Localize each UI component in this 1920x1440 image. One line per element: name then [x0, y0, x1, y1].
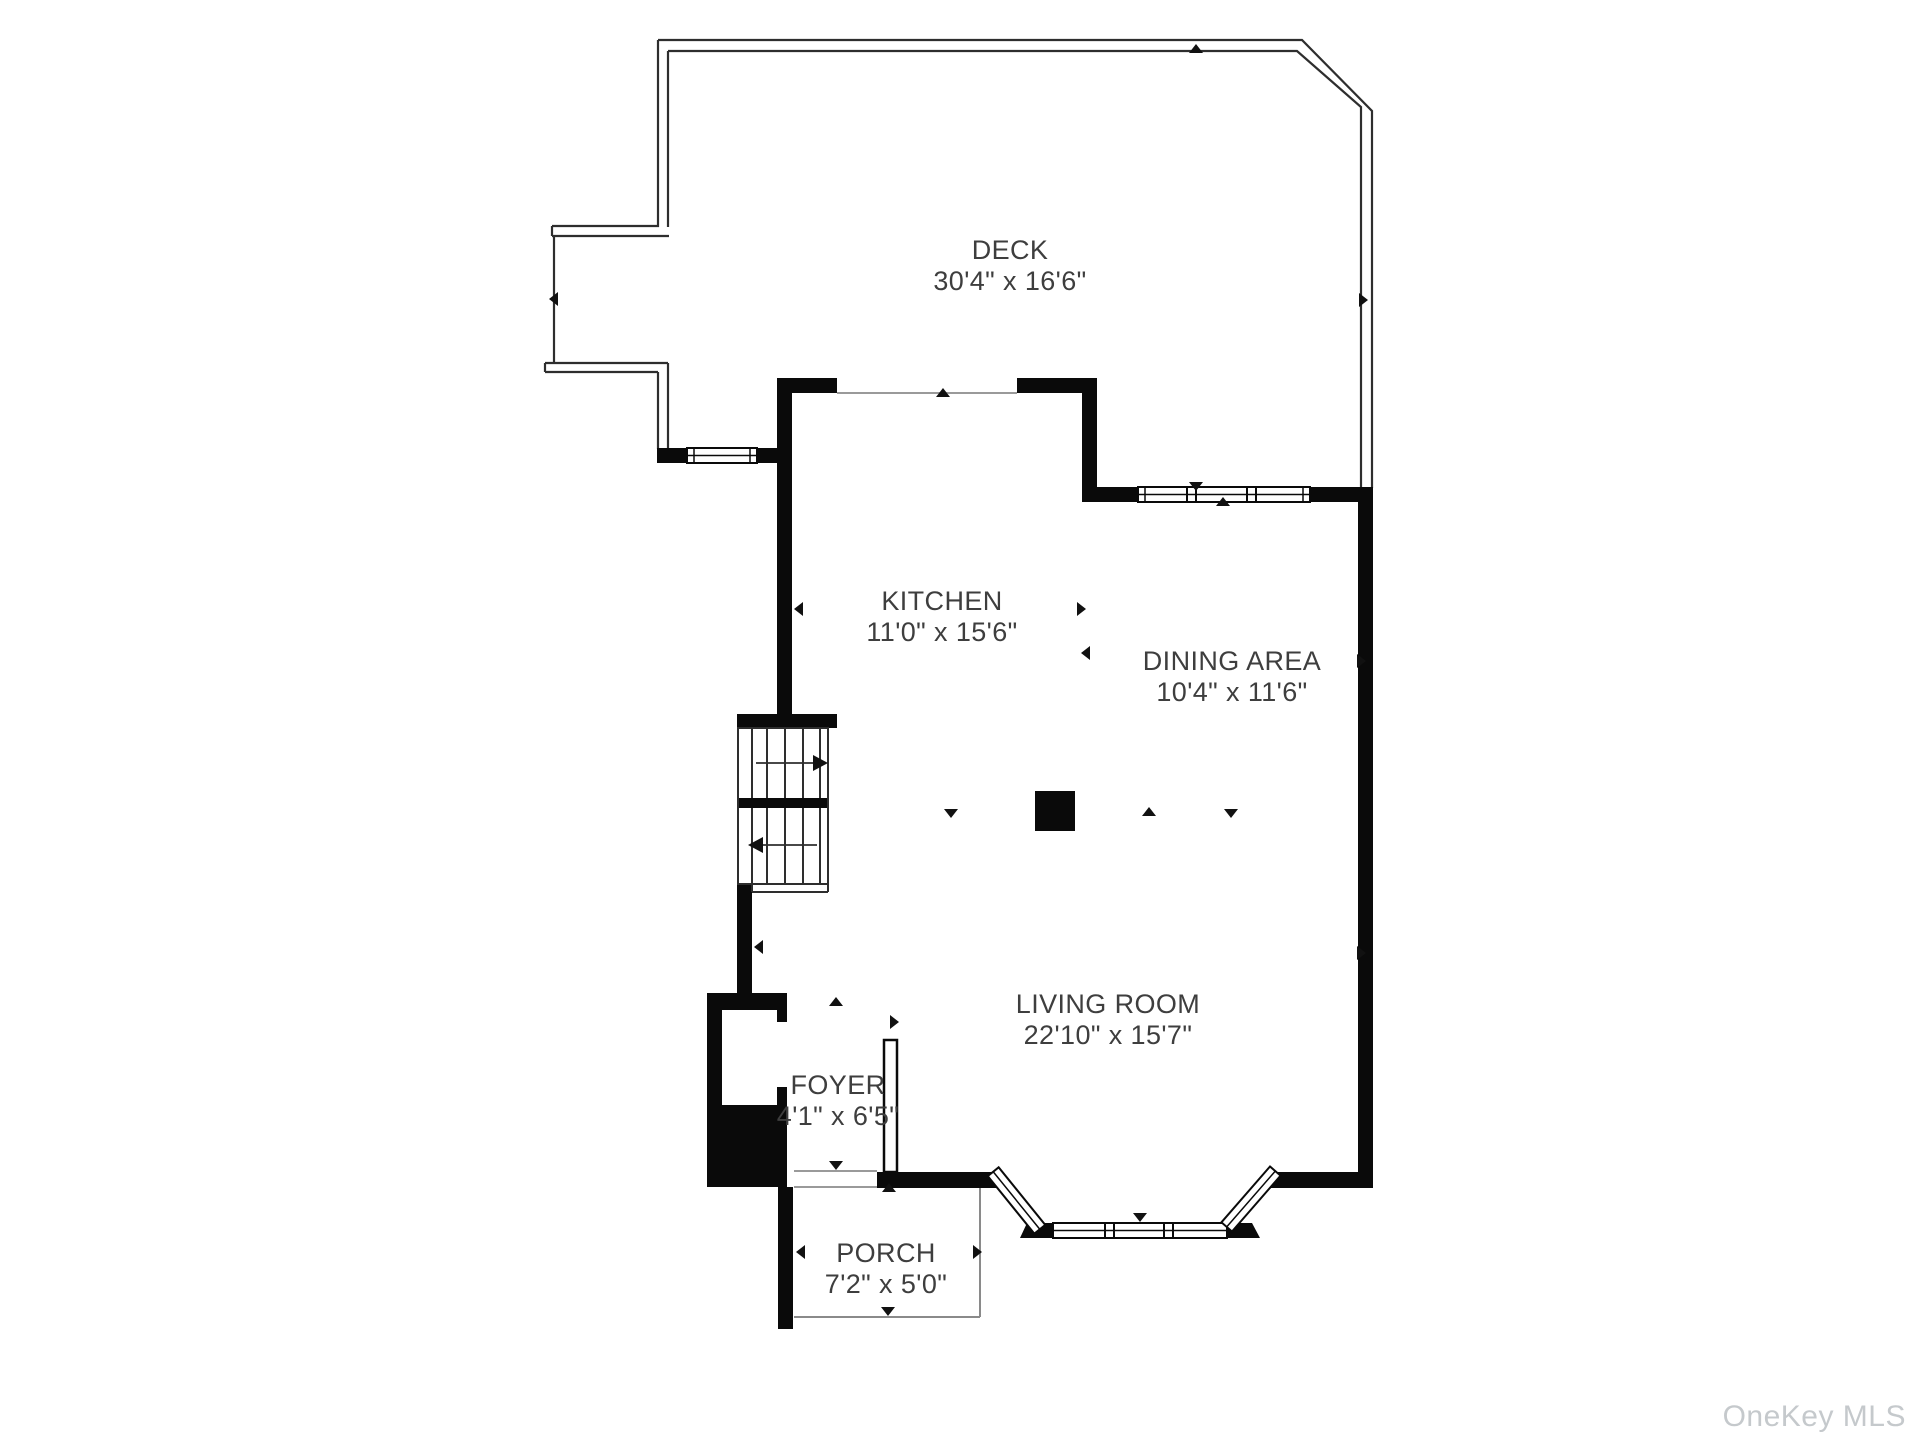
arrow-up-icon: [1142, 807, 1156, 816]
bay-window: [988, 1166, 1281, 1238]
dining-top-wall-left: [1097, 487, 1138, 502]
stair-arrow-left-icon: [748, 837, 763, 853]
below-stairs-wall: [737, 884, 752, 997]
room-name: LIVING ROOM: [1016, 989, 1200, 1020]
room-name: DECK: [933, 235, 1086, 266]
kitchen-window: [687, 448, 757, 463]
dining-corner-wall: [1082, 393, 1097, 502]
arrow-down-icon: [1224, 809, 1238, 818]
room-name: PORCH: [825, 1238, 947, 1269]
kitchen-left-wall: [777, 378, 792, 715]
porch-left-wall: [778, 1187, 793, 1329]
bay-window-right-diagonal: [1221, 1166, 1280, 1231]
arrow-up-icon: [1189, 44, 1203, 53]
room-name: FOYER: [777, 1070, 899, 1101]
room-dimensions: 4'1" x 6'5": [777, 1101, 899, 1132]
room-dimensions: 22'10" x 15'7": [1016, 1020, 1200, 1051]
stair-top-wall: [737, 714, 837, 728]
room-label-foyer: FOYER 4'1" x 6'5": [777, 1070, 899, 1132]
watermark: OneKey MLS: [1723, 1400, 1906, 1434]
bottom-wall-right: [1265, 1172, 1373, 1188]
kitchen-top-wall-right: [1017, 378, 1097, 393]
arrow-down-icon: [829, 1161, 843, 1170]
right-exterior-wall: [1358, 487, 1373, 1188]
room-label-living-room: LIVING ROOM 22'10" x 15'7": [1016, 989, 1200, 1051]
room-name: KITCHEN: [866, 586, 1017, 617]
room-dimensions: 10'4" x 11'6": [1143, 677, 1321, 708]
kitchen-window-stub-right: [757, 448, 777, 463]
arrow-up-icon: [829, 997, 843, 1006]
room-dimensions: 30'4" x 16'6": [933, 266, 1086, 297]
room-label-kitchen: KITCHEN 11'0" x 15'6": [866, 586, 1017, 648]
room-dimensions: 7'2" x 5'0": [825, 1269, 947, 1300]
arrow-left-icon: [794, 602, 803, 616]
arrow-down-icon: [944, 809, 958, 818]
room-label-porch: PORCH 7'2" x 5'0": [825, 1238, 947, 1300]
arrow-left-icon: [754, 940, 763, 954]
staircase: [738, 728, 828, 892]
room-label-deck: DECK 30'4" x 16'6": [933, 235, 1086, 297]
arrow-down-icon: [881, 1307, 895, 1316]
bay-window-left-diagonal: [988, 1167, 1045, 1233]
floorplan-page: { "watermark": "OneKey MLS", "colors": {…: [0, 0, 1920, 1440]
arrow-right-icon: [890, 1015, 899, 1029]
arrow-right-icon: [1359, 293, 1368, 307]
stair-mid-wall: [738, 798, 828, 808]
structural-column: [1035, 791, 1075, 831]
arrow-right-icon: [1077, 602, 1086, 616]
closet-recess: [722, 1010, 777, 1105]
room-label-dining-area: DINING AREA 10'4" x 11'6": [1143, 646, 1321, 708]
room-dimensions: 11'0" x 15'6": [866, 617, 1017, 648]
room-name: DINING AREA: [1143, 646, 1321, 677]
arrow-left-icon: [1081, 646, 1090, 660]
kitchen-window-stub-left: [657, 448, 687, 463]
arrow-down-icon: [1133, 1213, 1147, 1222]
floor-plan: [0, 0, 1920, 1440]
arrow-left-icon: [796, 1245, 805, 1259]
bottom-wall-left: [877, 1172, 998, 1188]
